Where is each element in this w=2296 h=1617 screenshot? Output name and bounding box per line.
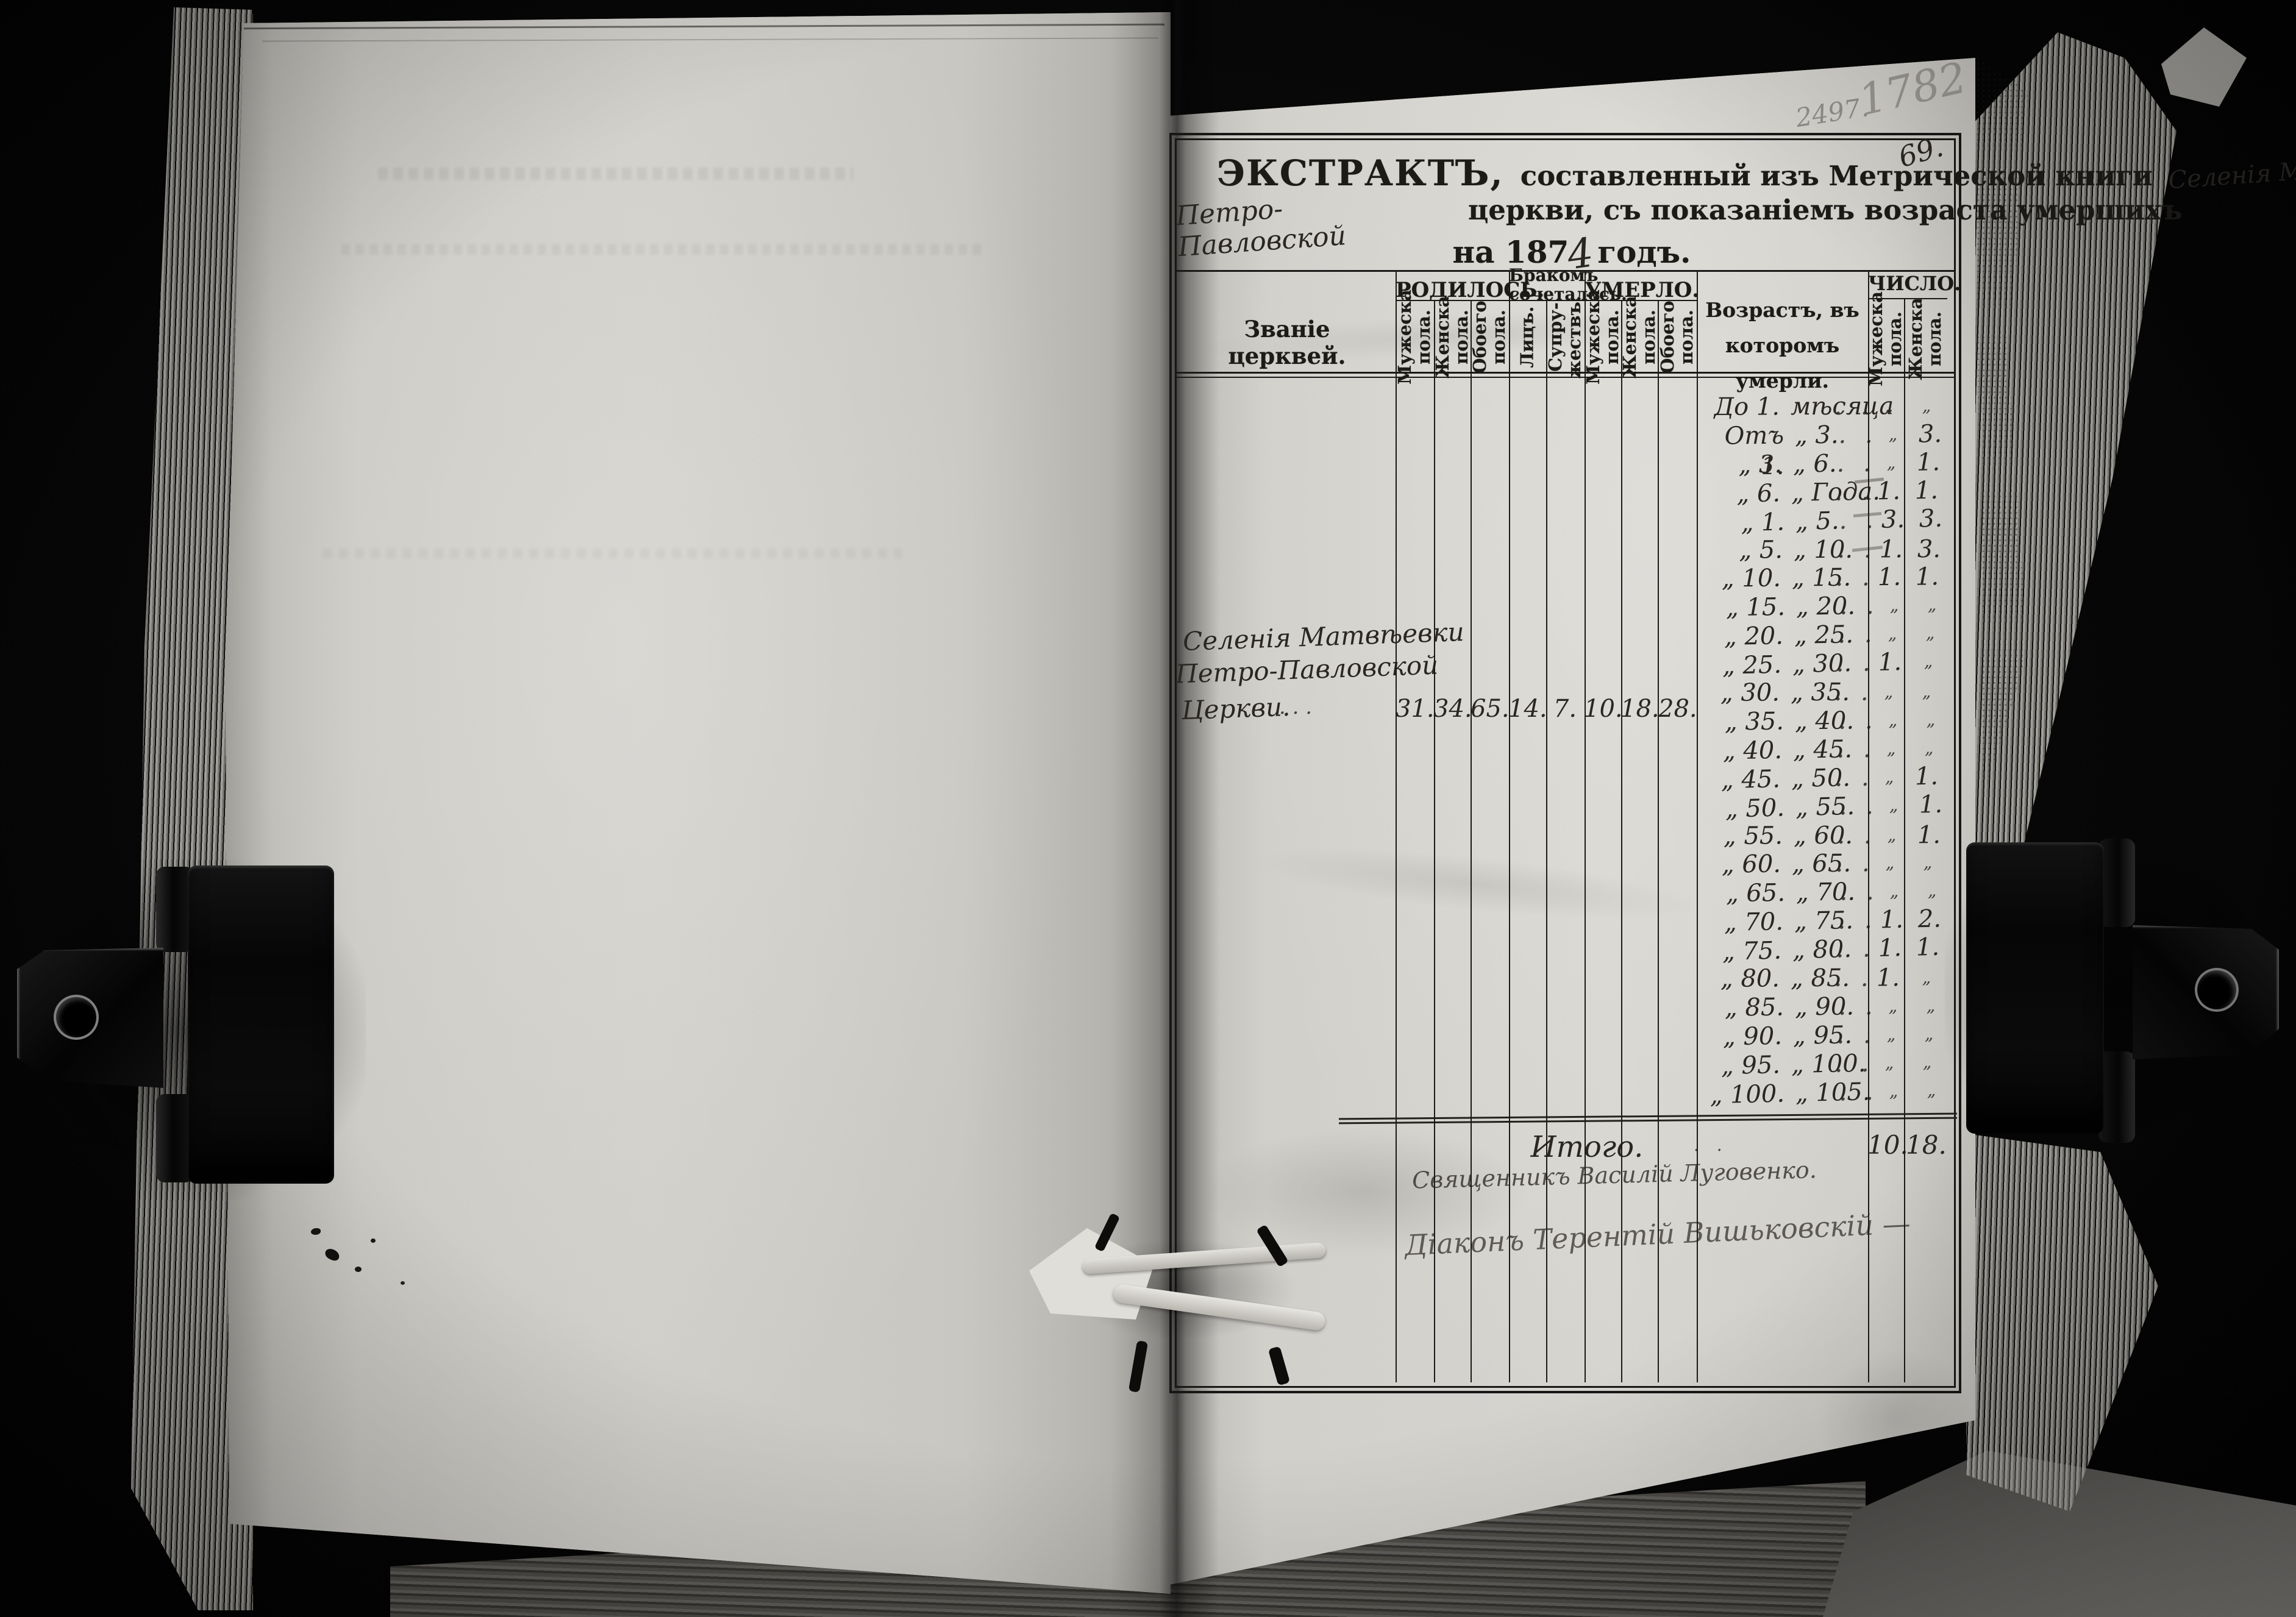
age-range-from: „ 65. [1700,878,1786,909]
age-range-from: „ 1. [1699,506,1784,539]
deaths-female-count: 1. [1910,447,1947,478]
deaths-female-count: 3. [1911,533,1947,564]
age-range-from: До 1. [1694,391,1780,422]
ink-stain [311,1228,321,1235]
age-range-to: „ 85. [1791,962,1894,993]
deaths-female-count: 3. [1912,503,1949,534]
table-column-line [1904,298,1905,1382]
right-binder-clip [1939,817,2296,1158]
table-column-line [1471,300,1472,1382]
age-range-to: „ 35. [1791,677,1894,708]
age-range-from: „ 20. [1698,620,1784,653]
clip-body [1966,842,2104,1134]
deaths-female-count: „ [1912,705,1948,736]
age-range-to: „ 5. [1795,504,1899,537]
ink-stain [324,1247,341,1262]
binding-tear [1012,1195,1353,1396]
age-range-from: „ 50. [1699,792,1784,825]
total-label: Итого. [1499,1130,1675,1164]
age-range-from: „ 95. [1695,1050,1781,1082]
ink-stain [371,1239,376,1243]
ink-stain [355,1267,362,1272]
age-range-from: „ 45. [1695,764,1781,796]
deaths-female-count: 1. [1912,789,1949,820]
table-column-line [1396,270,1397,1382]
age-range-to: „ 40. [1795,705,1898,737]
clip-bottom-pin [2098,1051,2135,1143]
deaths-female-count: „ [1908,391,1944,421]
age-range-from: „ 5. [1697,535,1783,566]
age-range-to: „ 20. [1796,591,1900,622]
ink-stain [401,1281,405,1285]
tear-slit [1128,1340,1148,1393]
age-range-to: „ 60. [1794,820,1897,851]
age-range-to: „ 80. [1792,933,1896,965]
deaths-female-count: „ [1908,677,1944,707]
table-column-line [1546,300,1547,1382]
title-village-name-handwritten: Селенія Матвѣевки [2167,148,2296,195]
age-range-to: „ 30. [1792,647,1896,680]
table-column-line [1585,270,1586,1382]
age-range-to: „ 10. [1794,534,1897,565]
left-page-top-edge-line2 [262,37,1158,41]
total-male-value: 10. [1867,1130,1905,1160]
age-range-from: „ 6. [1695,478,1781,510]
deaths-female-count: „ [1911,617,1948,649]
table-column-line [1621,300,1622,1382]
age-range-from: „ 90. [1697,1021,1783,1053]
age-range-from: „ 40. [1697,735,1783,767]
age-range-to: „ 75. [1794,904,1898,937]
metrical-book-photograph: ЭКСТРАКТЪ, составленный изъ Метрической … [0,0,2296,1617]
table-column-line [1658,300,1659,1382]
age-range-from: „ 70. [1698,906,1784,939]
age-range-to: „ 95. [1793,1019,1897,1051]
tear-slit [1268,1346,1290,1385]
age-range-to: „ 100. [1791,1048,1895,1080]
left-binder-clip [0,841,378,1207]
age-range-to: мѣсяца [1791,391,1894,422]
age-range-from: „ 30. [1694,677,1780,708]
age-range-from: „ 15. [1700,592,1786,624]
table-column-line [1509,270,1510,1382]
age-range-to: „ 3. [1795,419,1898,451]
deaths-female-count: „ [1910,733,1947,764]
clip-body [188,865,334,1184]
age-range-from: „ 35. [1699,706,1784,737]
age-range-to: „ 55. [1795,790,1899,823]
age-range-from: „ 55. [1697,820,1783,851]
bleedthrough-text-band [341,244,982,255]
clip-handle-hole [54,995,99,1040]
age-range-to: „ 15. [1792,562,1895,594]
age-range-from: „ 60. [1695,849,1781,880]
age-range-from: „ 80. [1694,963,1780,994]
age-range-to: „ 6. [1793,447,1897,479]
age-range-to: „ 50. [1791,762,1895,794]
total-leader-dots: . . [1694,1135,1728,1155]
deaths-female-count: 1. [1908,475,1945,506]
table-column-line [1697,270,1698,1382]
deaths-female-count: 1. [1909,561,1945,592]
right-page-edge-stack-bottom [1966,1134,2158,1512]
age-row: „ 100.„ 105.. .„„ [1699,1075,1955,1112]
clip-top-pin [2098,839,2135,927]
age-range-from: „ 3. [1697,449,1783,481]
table-column-line [1868,270,1869,1382]
age-range-to: „ 45. [1793,733,1897,765]
age-range-from: „ 10. [1695,563,1781,594]
clip-handle-hole [2195,968,2239,1012]
deaths-female-count: „ [1913,589,1950,620]
age-range-to: „ 70. [1796,876,1900,908]
torn-paper-scrap [2161,27,2247,107]
age-range-from: „ 100. [1699,1078,1784,1111]
total-female-value: 18. [1906,1130,1944,1160]
age-range-to: „ 25. [1794,619,1898,651]
table-column-line [1434,300,1435,1382]
deaths-female-count: 1. [1908,761,1945,792]
bleedthrough-text-band [323,549,902,558]
deaths-female-count: „ [1909,646,1946,677]
age-range-to: „ 105. [1795,1076,1899,1109]
bleedthrough-text-band [378,168,854,180]
deaths-female-count: 3. [1912,419,1948,450]
age-range-to: „ 65. [1792,848,1895,880]
left-page-top-edge-line [232,24,1164,30]
age-range-from: „ 85. [1699,992,1784,1023]
age-range-to: „ 90. [1795,991,1898,1023]
total-row: Итого. . . 10. 18. [1169,1130,1961,1167]
